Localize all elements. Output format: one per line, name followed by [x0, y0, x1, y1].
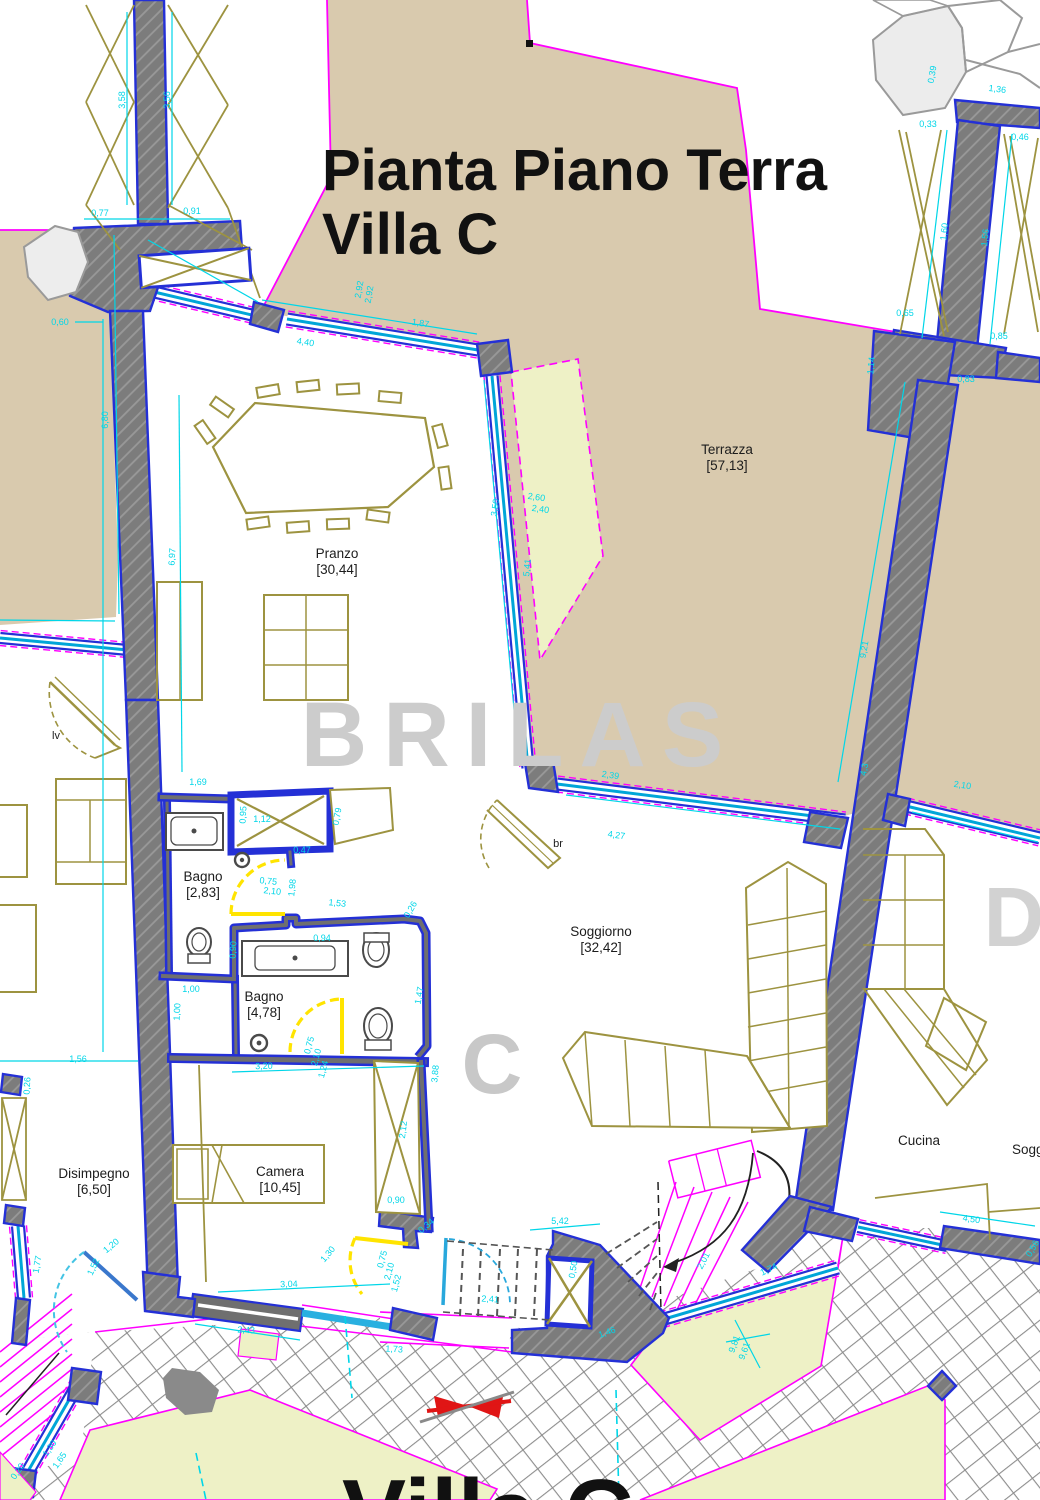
svg-text:6,80: 6,80: [100, 411, 110, 429]
svg-text:D: D: [984, 870, 1040, 964]
svg-text:0,60: 0,60: [51, 317, 69, 327]
svg-text:3,20: 3,20: [255, 1061, 273, 1072]
svg-text:0,83: 0,83: [957, 374, 975, 384]
svg-text:Sogg: Sogg: [1012, 1142, 1040, 1157]
svg-text:Camera: Camera: [256, 1164, 305, 1179]
svg-text:0,33: 0,33: [919, 119, 937, 129]
svg-text:[10,45]: [10,45]: [259, 1180, 300, 1195]
svg-text:BRILAS: BRILAS: [301, 684, 739, 786]
svg-text:C: C: [462, 1017, 523, 1111]
svg-text:4,3: 4,3: [858, 762, 870, 776]
svg-text:1,60: 1,60: [938, 222, 950, 240]
svg-text:5,41: 5,41: [521, 558, 533, 576]
svg-text:[2,83]: [2,83]: [186, 885, 220, 900]
svg-text:2,10: 2,10: [263, 885, 281, 897]
svg-text:0,77: 0,77: [91, 208, 109, 218]
svg-text:2,12: 2,12: [397, 1120, 409, 1139]
svg-text:1,12: 1,12: [253, 814, 271, 824]
svg-text:Soggiorno: Soggiorno: [570, 924, 632, 939]
svg-text:[4,78]: [4,78]: [247, 1005, 281, 1020]
svg-text:1,56: 1,56: [979, 228, 991, 246]
svg-text:Bagno: Bagno: [183, 869, 222, 884]
svg-text:1,56: 1,56: [69, 1054, 87, 1064]
svg-text:Cucina: Cucina: [898, 1133, 941, 1148]
svg-text:0,46: 0,46: [1011, 132, 1029, 142]
svg-text:2,41: 2,41: [481, 1294, 499, 1305]
svg-text:0,95: 0,95: [238, 806, 249, 824]
svg-text:Pianta Piano Terra: Pianta Piano Terra: [322, 138, 828, 203]
svg-text:[57,13]: [57,13]: [706, 458, 747, 473]
svg-text:1,00: 1,00: [172, 1003, 183, 1021]
svg-text:0,26: 0,26: [22, 1077, 33, 1095]
svg-text:0,90: 0,90: [387, 1195, 405, 1205]
svg-text:Pranzo: Pranzo: [316, 546, 359, 561]
svg-text:1,98: 1,98: [286, 878, 298, 896]
svg-text:1,69: 1,69: [189, 777, 207, 787]
svg-text:5,42: 5,42: [551, 1216, 569, 1226]
svg-text:1,53: 1,53: [328, 897, 346, 909]
svg-text:1,14: 1,14: [865, 356, 877, 374]
svg-text:3,88: 3,88: [429, 1065, 440, 1083]
svg-text:Disimpegno: Disimpegno: [58, 1166, 129, 1181]
svg-text:lv: lv: [52, 730, 60, 742]
svg-text:Villa C: Villa C: [322, 202, 498, 267]
svg-text:3,58: 3,58: [117, 91, 127, 109]
svg-text:br: br: [553, 838, 563, 850]
svg-text:1,73: 1,73: [385, 1344, 403, 1355]
svg-text:0,47: 0,47: [293, 845, 311, 855]
svg-text:0,65: 0,65: [896, 308, 914, 318]
svg-text:Villa C: Villa C: [342, 1460, 634, 1500]
svg-text:1,36: 1,36: [988, 83, 1007, 95]
svg-text:3,56: 3,56: [162, 91, 172, 109]
svg-text:[32,42]: [32,42]: [580, 940, 621, 955]
svg-text:2,43: 2,43: [237, 1325, 255, 1336]
svg-text:Bagno: Bagno: [244, 989, 283, 1004]
svg-text:0,91: 0,91: [183, 206, 201, 216]
svg-text:Terrazza: Terrazza: [701, 442, 753, 457]
svg-text:[30,44]: [30,44]: [316, 562, 357, 577]
svg-text:0,90: 0,90: [228, 941, 239, 959]
svg-text:0,85: 0,85: [990, 331, 1008, 341]
svg-text:1,00: 1,00: [182, 984, 200, 994]
svg-text:0,94: 0,94: [313, 933, 331, 943]
svg-text:[6,50]: [6,50]: [77, 1182, 111, 1197]
svg-text:3,04: 3,04: [280, 1279, 298, 1290]
svg-text:6,97: 6,97: [167, 548, 178, 566]
